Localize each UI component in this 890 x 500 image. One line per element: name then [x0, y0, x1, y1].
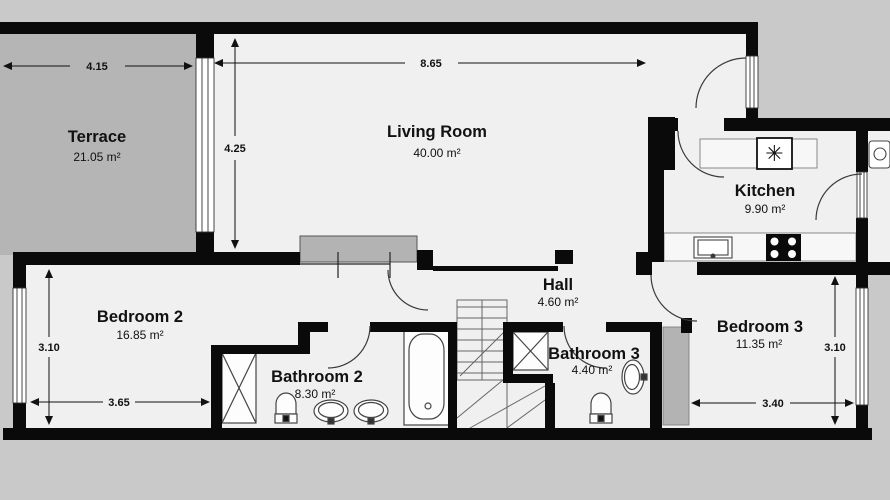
- bedroom3-window: [856, 288, 868, 405]
- dim-bedroom2-width: 3.65: [108, 397, 129, 409]
- dim-bedroom3-height: 3.10: [824, 342, 845, 354]
- sideboard: [300, 236, 417, 262]
- kitchen-side-door-frame: [857, 172, 867, 218]
- dim-living-height: 4.25: [224, 143, 245, 155]
- room-label-living: Living Room: [387, 123, 487, 141]
- room-area-bedroom3: 11.35 m²: [736, 337, 782, 351]
- wardrobe: [663, 327, 689, 425]
- room-area-bathroom2: 8.30 m²: [295, 387, 336, 401]
- dim-bedroom3-width: 3.40: [762, 398, 783, 410]
- shower-bathroom2: [222, 353, 256, 423]
- room-label-bedroom3: Bedroom 3: [717, 318, 803, 336]
- room-label-kitchen: Kitchen: [735, 182, 796, 200]
- room-area-living: 40.00 m²: [413, 146, 460, 160]
- kitchen-sink: [694, 237, 732, 258]
- room-area-terrace: 21.05 m²: [73, 150, 120, 164]
- entry-door-frame: [746, 56, 758, 108]
- room-label-terrace: Terrace: [68, 128, 126, 146]
- dim-living-width: 8.65: [420, 58, 441, 70]
- floor-plan-svg: ✳: [0, 0, 890, 500]
- dim-terrace-width: 4.15: [86, 61, 107, 73]
- room-area-hall: 4.60 m²: [538, 295, 579, 309]
- bathtub: [404, 328, 449, 425]
- boiler-icon: ✳: [765, 141, 783, 166]
- washing-machine: [869, 141, 890, 168]
- toilet-bathroom3: [590, 393, 612, 423]
- stove: [766, 234, 801, 261]
- room-area-bedroom2: 16.85 m²: [116, 328, 163, 342]
- room-label-bathroom3: Bathroom 3: [548, 345, 640, 363]
- shower-bathroom3: [513, 332, 548, 370]
- bedroom2-window: [13, 288, 26, 403]
- terrace-window: [196, 58, 214, 232]
- room-area-kitchen: 9.90 m²: [745, 202, 786, 216]
- room-label-hall: Hall: [543, 276, 573, 294]
- floor-plan: ✳: [0, 0, 890, 500]
- dim-bedroom2-height: 3.10: [38, 342, 59, 354]
- kitchen-counter-bottom: [664, 233, 856, 261]
- room-area-bathroom3: 4.40 m²: [572, 363, 613, 377]
- room-label-bathroom2: Bathroom 2: [271, 368, 363, 386]
- room-label-bedroom2: Bedroom 2: [97, 308, 183, 326]
